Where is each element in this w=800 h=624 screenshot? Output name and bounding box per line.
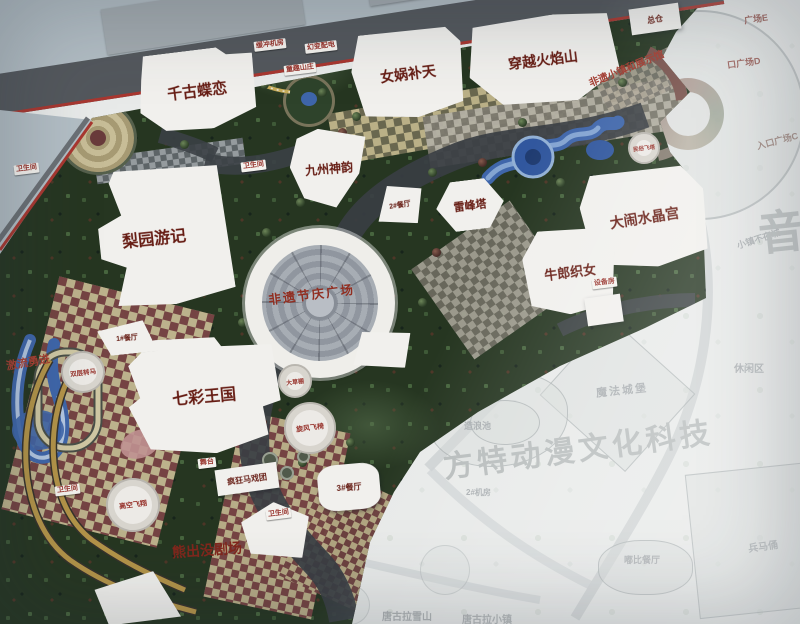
label-canting3: 3#餐厅 <box>336 480 362 493</box>
label-feita: 民俗飞塔 <box>633 143 656 154</box>
label-dacaopeng: 大草棚 <box>286 375 305 386</box>
carousel-circle: 双层转马 <box>61 351 105 393</box>
sky-flyer-circle: 高空飞翔 <box>106 478 160 532</box>
label-canting1: 1#餐厅 <box>116 332 139 344</box>
label-zongcang: 总仓 <box>646 12 663 25</box>
label-jiuzhou: 九州神韵 <box>304 157 353 178</box>
label-qicai: 七彩王国 <box>171 380 237 409</box>
label-shuijinggong: 大闹水晶宫 <box>608 203 680 234</box>
label-qiangu: 千古蝶恋 <box>166 76 228 104</box>
label-nvwa: 女娲补天 <box>379 61 437 88</box>
label-gaokong: 高空飞翔 <box>118 498 147 511</box>
label-zhuanma: 双层转马 <box>69 365 96 378</box>
grass-shed-circle: 大草棚 <box>278 364 312 398</box>
label-leifengta: 雷峰塔 <box>453 195 488 215</box>
label-huoyanshan: 穿越火焰山 <box>507 46 579 74</box>
swing-ride-circle: 旋风飞椅 <box>284 402 336 454</box>
label-liyuan: 梨园游记 <box>121 222 187 253</box>
frame-edge-line <box>0 118 88 244</box>
boundary-red-line <box>0 122 92 250</box>
label-niulang: 牛郎织女 <box>543 258 597 283</box>
label-xuanfeng: 旋风飞椅 <box>295 421 324 434</box>
folk-tower-circle: 民俗飞塔 <box>628 132 660 164</box>
label-maxituan: 疯狂马戏团 <box>226 471 267 487</box>
label-canting2: 2#餐厅 <box>388 198 411 212</box>
park-map-photo: 储物间 4#餐厅 漂流河 造浪池 魔法城堡 休闲区 兵马俑 嘟比餐厅 2#机房 … <box>0 0 800 624</box>
building-small-annex <box>584 294 624 327</box>
building-canting3: 3#餐厅 <box>316 461 382 512</box>
